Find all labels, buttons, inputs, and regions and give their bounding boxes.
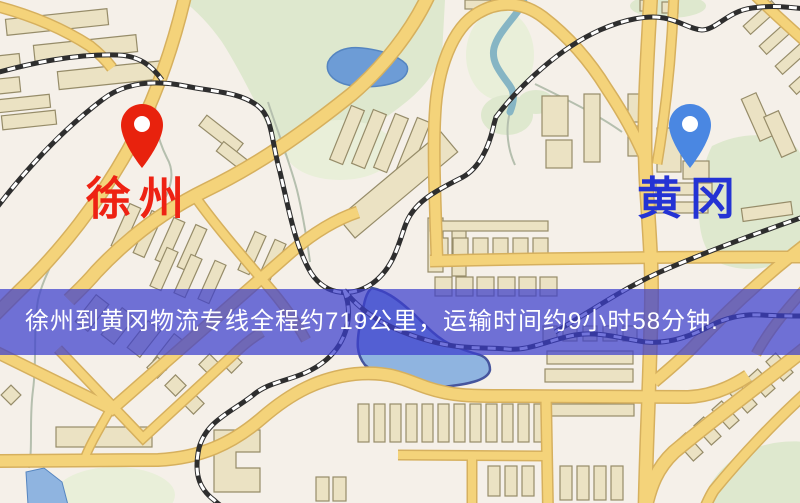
pond (26, 468, 68, 503)
building (505, 466, 517, 496)
building (0, 94, 51, 112)
road (645, 0, 652, 503)
park-area (55, 467, 175, 503)
building (560, 466, 572, 500)
info-banner-text: 徐州到黄冈物流专线全程约719公里，运输时间约9小时58分钟. (25, 308, 719, 335)
building (513, 238, 528, 255)
building (1, 385, 21, 405)
building (502, 404, 513, 442)
building (374, 404, 385, 442)
road (546, 396, 548, 503)
building (438, 404, 449, 442)
building (522, 466, 534, 496)
building (150, 247, 178, 290)
building (406, 404, 417, 442)
building (390, 404, 401, 442)
building (473, 238, 488, 255)
map-screenshot: 徐州到黄冈物流专线全程约719公里，运输时间约9小时58分钟. 徐州 黄冈 (0, 0, 800, 503)
destination-label: 黄冈 (637, 176, 743, 221)
building (546, 140, 572, 168)
building (594, 466, 606, 500)
pin-hole (134, 116, 150, 132)
building (544, 404, 634, 416)
building (358, 404, 369, 442)
road (434, 4, 646, 258)
road (398, 455, 546, 456)
road-casing (434, 4, 646, 258)
building (454, 404, 465, 442)
pin-body (669, 104, 711, 168)
building (1, 110, 56, 130)
building (430, 221, 548, 231)
origin-label: 徐州 (86, 176, 192, 221)
building (545, 369, 633, 382)
building (488, 466, 500, 496)
building (422, 404, 433, 442)
origin-location-pin-icon (118, 101, 166, 169)
destination-location-pin-icon (666, 101, 714, 169)
building (775, 41, 800, 75)
map-canvas (0, 0, 800, 503)
building (165, 375, 186, 396)
info-banner: 徐州到黄冈物流专线全程约719公里，运输时间约9小时58分钟. (0, 289, 800, 355)
building (611, 466, 623, 500)
building (486, 404, 497, 442)
building (470, 404, 481, 442)
building (584, 94, 600, 162)
building (518, 404, 529, 442)
building (316, 477, 329, 501)
building (453, 238, 468, 255)
building (577, 466, 589, 500)
building (0, 77, 21, 94)
road (430, 257, 800, 261)
building (493, 238, 508, 255)
building (542, 96, 568, 136)
pin-body (121, 104, 163, 168)
building (333, 477, 346, 501)
pin-hole (682, 116, 698, 132)
